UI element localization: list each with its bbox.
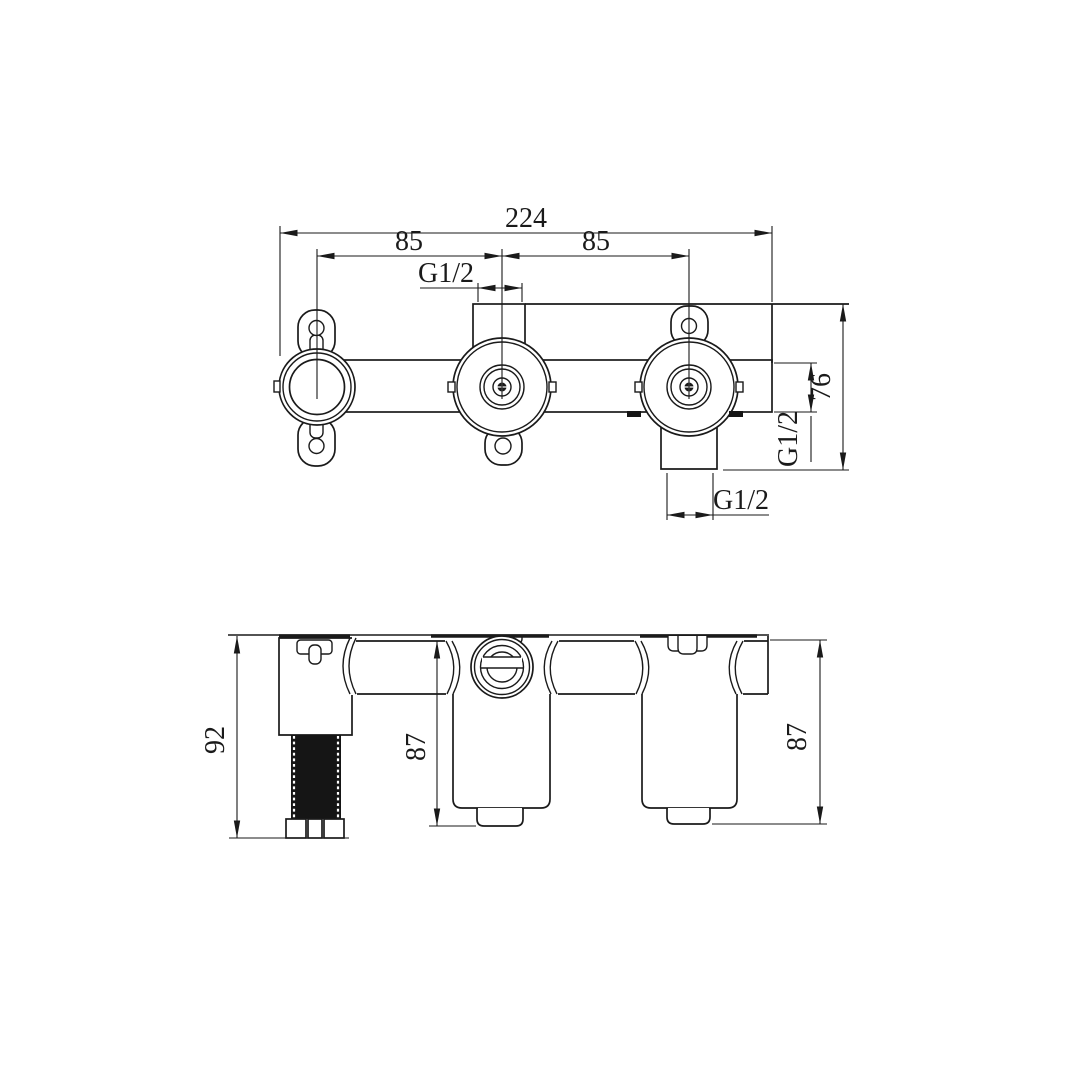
dim-label-side-port: G1/2: [773, 411, 804, 467]
right-valve-tab-right: [736, 382, 743, 392]
dim-label-center-depth: 87: [401, 733, 432, 761]
center-fillet-left-b: [446, 641, 454, 694]
stem-nut-face-mid: [308, 819, 322, 838]
dim-label-top-port: G1/2: [418, 258, 474, 289]
center-lug-hole: [495, 438, 511, 454]
technical-drawing: 224 85 85 G1/2 G1/2 76: [0, 0, 1080, 1080]
center-valve-tab-left: [448, 382, 455, 392]
left-block-pin: [309, 645, 321, 664]
center-cap-fill: [478, 808, 522, 824]
left-bottom-lug-hole: [309, 439, 324, 454]
right-cyl-fill: [643, 695, 736, 807]
left-valve-side-tab: [274, 381, 280, 392]
dim-label-overall-width: 224: [505, 203, 547, 234]
bar-clip-left: [627, 411, 641, 417]
right-fillet-right-b: [735, 641, 743, 694]
center-valve-tab-right: [549, 382, 556, 392]
front-view: 224 85 85 G1/2 G1/2 76: [274, 203, 849, 520]
center-fillet-right-b: [550, 641, 558, 694]
threaded-stem: [291, 735, 341, 819]
center-plug-slot-fill: [482, 657, 522, 669]
dim-label-left-depth: 92: [200, 726, 231, 754]
dim-bottom-port: G1/2: [667, 473, 769, 520]
dim-label-pitch-left: 85: [395, 226, 423, 257]
dim-label-body-height: 76: [806, 373, 837, 401]
dim-label-pitch-right: 85: [582, 226, 610, 257]
dim-top-port: G1/2: [418, 258, 522, 302]
technical-drawing-page: 224 85 85 G1/2 G1/2 76: [0, 0, 1080, 1080]
dim-pitch-left: 85: [317, 226, 502, 257]
stem-nut-face-right: [324, 819, 344, 838]
dim-label-bottom-port: G1/2: [713, 485, 769, 516]
stem-nut-face-left: [286, 819, 306, 838]
bar-clip-right: [729, 411, 743, 417]
right-fillet-left-b: [635, 641, 643, 694]
bottom-view: 92 87 87: [200, 635, 827, 838]
left-valve: [274, 349, 355, 425]
center-cyl-fill: [454, 695, 549, 807]
dim-label-right-depth: 87: [782, 723, 813, 751]
right-cap-fill: [668, 808, 709, 823]
right-valve-tab-notch: [678, 636, 697, 654]
right-valve-tab-left: [635, 382, 642, 392]
